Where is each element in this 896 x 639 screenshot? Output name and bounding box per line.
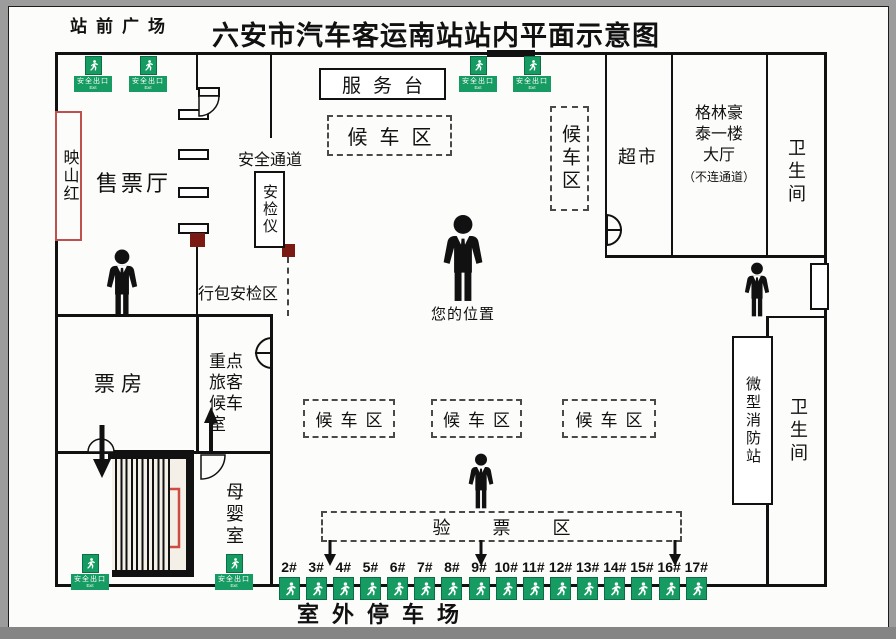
gate-label: 7# bbox=[411, 559, 439, 575]
safety-exit-sign: 安全出口Exit bbox=[68, 554, 112, 590]
vip-waiting-label: 重点旅客候车室 bbox=[209, 351, 247, 435]
ticket-window bbox=[178, 149, 209, 160]
exit-sign-sub: Exit bbox=[223, 585, 245, 589]
exit-runner-icon bbox=[226, 554, 243, 573]
safety-exit-sign: 安全出口Exit bbox=[71, 56, 115, 92]
safety-exit-sign: 安全出口Exit bbox=[456, 56, 500, 92]
exit-runner-icon bbox=[82, 554, 99, 573]
waiting-area-box-1: 候车区 bbox=[303, 399, 395, 438]
security-scanner-box: 安检仪 bbox=[254, 171, 285, 248]
exit-gate-icon bbox=[496, 577, 517, 600]
wall-safety-passage bbox=[270, 52, 272, 138]
plaza-label: 站前广场 bbox=[70, 12, 174, 37]
waiting-area-label: 候车区 bbox=[568, 406, 651, 431]
gate-label: 6# bbox=[384, 559, 412, 575]
exit-gate-icon bbox=[469, 577, 490, 600]
gate-label: 13# bbox=[574, 559, 602, 575]
stairs-right-wall bbox=[186, 450, 194, 577]
ticket-window bbox=[178, 187, 209, 198]
exit-gate-icon bbox=[550, 577, 571, 600]
exit-sign-label: 安全出口 bbox=[218, 576, 250, 583]
waiting-area-label: 候车区 bbox=[308, 406, 391, 431]
ticket-window bbox=[178, 109, 209, 120]
exit-sign-label: 安全出口 bbox=[462, 78, 494, 85]
exit-gate-icon bbox=[577, 577, 598, 600]
mother-baby-label: 母婴室 bbox=[221, 482, 247, 548]
ticket-hall-label: 售票厅 bbox=[96, 166, 171, 198]
waiting-area-label: 候车区 bbox=[435, 406, 518, 431]
security-scanner-label: 安检仪 bbox=[259, 184, 280, 235]
gate-label: 3# bbox=[302, 559, 330, 575]
exit-gate-icon bbox=[631, 577, 652, 600]
exit-gate-icon bbox=[306, 577, 327, 600]
exit-sign-label: 安全出口 bbox=[132, 78, 164, 85]
your-location-label: 您的位置 bbox=[431, 303, 495, 324]
exit-sign-sub: Exit bbox=[467, 87, 489, 91]
floorplan-stage: 站前广场 六安市汽车客运南站站内平面示意图 映山红 服务台 候车区 候车区 安检… bbox=[0, 0, 896, 639]
exit-sign-sub: Exit bbox=[521, 87, 543, 91]
wall-market-left bbox=[605, 52, 607, 257]
outdoor-parking-label: 室外停车场 bbox=[297, 597, 472, 629]
exit-runner-icon bbox=[85, 56, 102, 75]
waiting-area-box-2: 候车区 bbox=[431, 399, 522, 438]
exit-gate-icon bbox=[414, 577, 435, 600]
ticket-office-label: 票房 bbox=[94, 368, 148, 398]
service-desk-label: 服务台 bbox=[330, 71, 435, 98]
scanner-marker bbox=[190, 233, 205, 247]
gate-label: 2# bbox=[275, 559, 303, 575]
exit-gate-icon bbox=[279, 577, 300, 600]
gate-label: 10# bbox=[492, 559, 520, 575]
yingshanhong-box: 映山红 bbox=[55, 111, 82, 241]
gate-label: 5# bbox=[356, 559, 384, 575]
exit-sign-label: 安全出口 bbox=[77, 78, 109, 85]
exit-gate-icon bbox=[387, 577, 408, 600]
wall-tickethall-bottom bbox=[55, 314, 273, 317]
gate-label: 17# bbox=[682, 559, 710, 575]
wall-office-divider bbox=[196, 314, 199, 454]
exit-runner-icon bbox=[470, 56, 487, 75]
exit-gate-icon bbox=[659, 577, 680, 600]
wall-lowerright-top bbox=[766, 316, 827, 318]
gate-label: 4# bbox=[329, 559, 357, 575]
safety-exit-sign: 安全出口Exit bbox=[212, 554, 256, 590]
exit-runner-icon bbox=[524, 56, 541, 75]
wall-right bbox=[824, 52, 827, 587]
exit-sign-sub: Exit bbox=[137, 87, 159, 91]
greentree-hall-block: 格林豪泰一楼大厅 （不连通道） bbox=[673, 103, 765, 185]
stairs-top-bar bbox=[108, 450, 192, 459]
mini-fire-station-label: 微型消防站 bbox=[742, 376, 763, 466]
exit-gate-icon bbox=[523, 577, 544, 600]
wall-ticket-windows-top bbox=[196, 52, 198, 90]
safety-passage-label: 安全通道 bbox=[238, 146, 302, 170]
right-wall-door bbox=[810, 263, 829, 310]
exit-sign-label: 安全出口 bbox=[74, 576, 106, 583]
staircase bbox=[112, 459, 186, 570]
waiting-area-label: 候车区 bbox=[336, 121, 444, 150]
exit-gate-icon bbox=[360, 577, 381, 600]
wall-greentree-right bbox=[766, 52, 768, 257]
wall-rightsection-bottom bbox=[605, 255, 827, 258]
restroom-bottom-label: 卫生间 bbox=[785, 397, 811, 466]
station-floorplan: { "title": "六安市汽车客运南站站内平面示意图", "plaza": … bbox=[0, 0, 896, 639]
service-desk-box: 服务台 bbox=[319, 68, 446, 100]
waiting-area-box-3: 候车区 bbox=[562, 399, 656, 438]
wall-top bbox=[55, 52, 827, 55]
greentree-note-label: （不连通道） bbox=[673, 168, 765, 185]
mini-fire-station-box: 微型消防站 bbox=[732, 336, 773, 505]
gate-label: 14# bbox=[601, 559, 629, 575]
gate-label: 8# bbox=[438, 559, 466, 575]
gate-label: 12# bbox=[547, 559, 575, 575]
safety-exit-sign: 安全出口Exit bbox=[510, 56, 554, 92]
exit-sign-sub: Exit bbox=[79, 585, 101, 589]
exit-runner-icon bbox=[140, 56, 157, 75]
luggage-check-boundary bbox=[287, 257, 289, 316]
gate-label: 16# bbox=[655, 559, 683, 575]
yingshanhong-label: 映山红 bbox=[57, 149, 81, 203]
greentree-hall-label: 格林豪泰一楼大厅 bbox=[693, 103, 745, 166]
stair-steps bbox=[115, 459, 171, 570]
waiting-area-box-top: 候车区 bbox=[327, 115, 452, 156]
gate-label: 15# bbox=[628, 559, 656, 575]
ticket-check-label: 验票区 bbox=[391, 514, 613, 540]
ticket-check-box: 验票区 bbox=[321, 511, 682, 542]
exit-gate-icon bbox=[441, 577, 462, 600]
gate-label: 9# bbox=[465, 559, 493, 575]
exit-gate-icon bbox=[333, 577, 354, 600]
exit-gate-icon bbox=[604, 577, 625, 600]
supermarket-label: 超市 bbox=[618, 143, 658, 169]
restroom-top-label: 卫生间 bbox=[783, 138, 809, 207]
page-title: 六安市汽车客运南站站内平面示意图 bbox=[212, 14, 660, 53]
exit-gate-icon bbox=[686, 577, 707, 600]
exit-sign-label: 安全出口 bbox=[516, 78, 548, 85]
exit-sign-sub: Exit bbox=[82, 87, 104, 91]
luggage-check-label: 行包安检区 bbox=[198, 280, 278, 304]
stairs-bottom-bar bbox=[112, 570, 192, 577]
waiting-area-label: 候车区 bbox=[556, 124, 583, 193]
waiting-area-box-vertical: 候车区 bbox=[550, 106, 589, 211]
safety-exit-sign: 安全出口Exit bbox=[126, 56, 170, 92]
gate-label: 11# bbox=[519, 559, 547, 575]
